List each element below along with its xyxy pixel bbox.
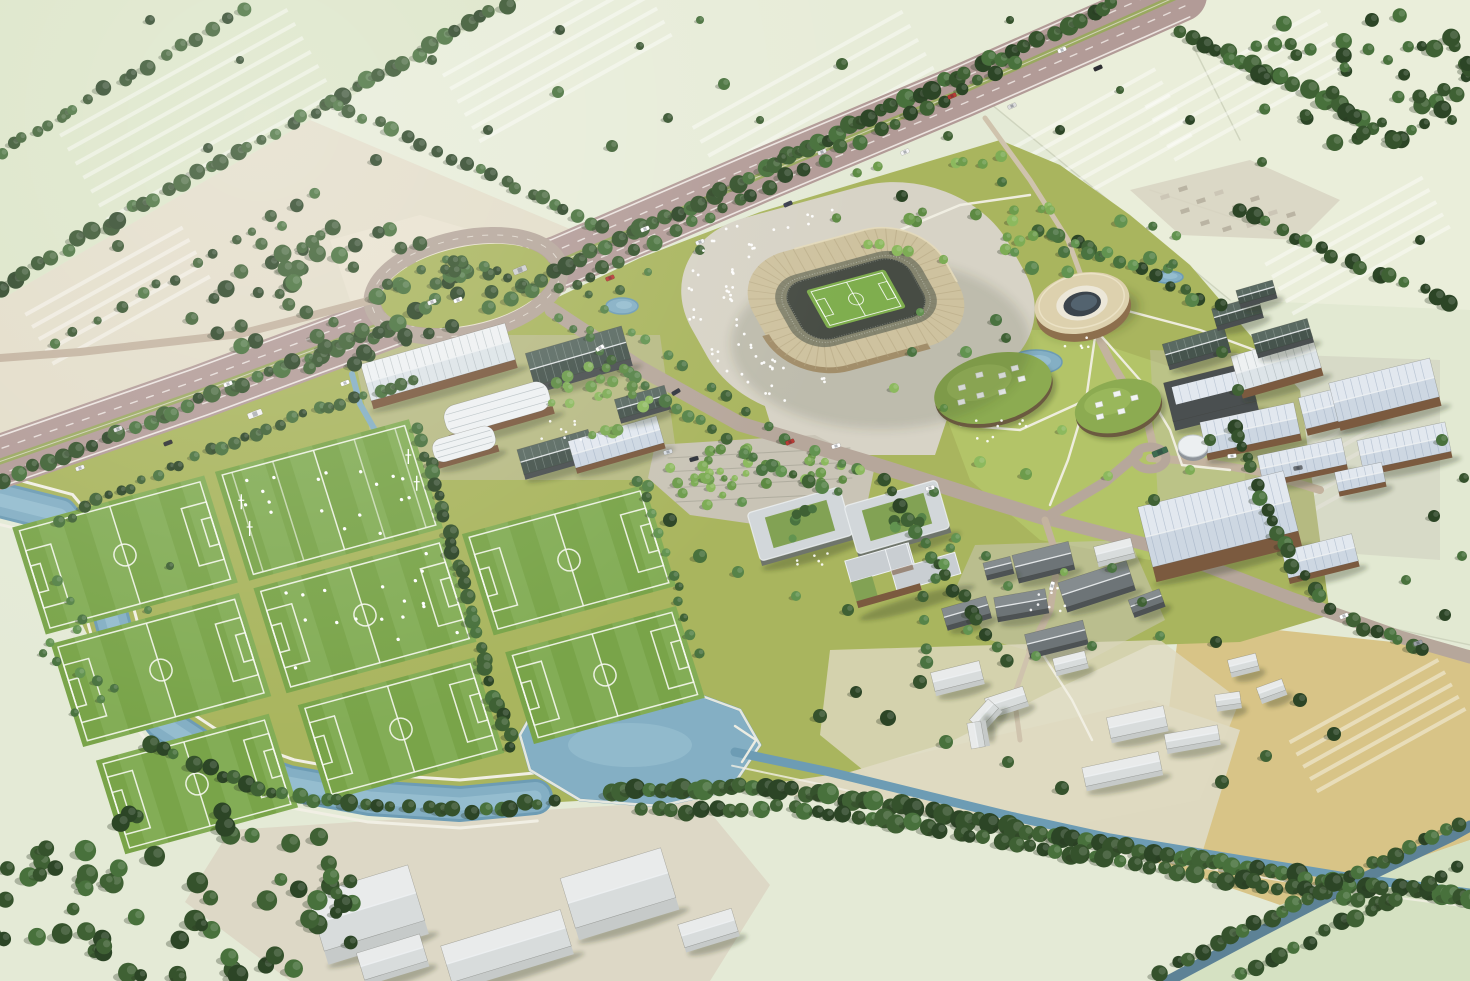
masterplan-scene xyxy=(0,0,1470,981)
car xyxy=(1227,453,1236,458)
aerial-render xyxy=(0,0,1470,981)
